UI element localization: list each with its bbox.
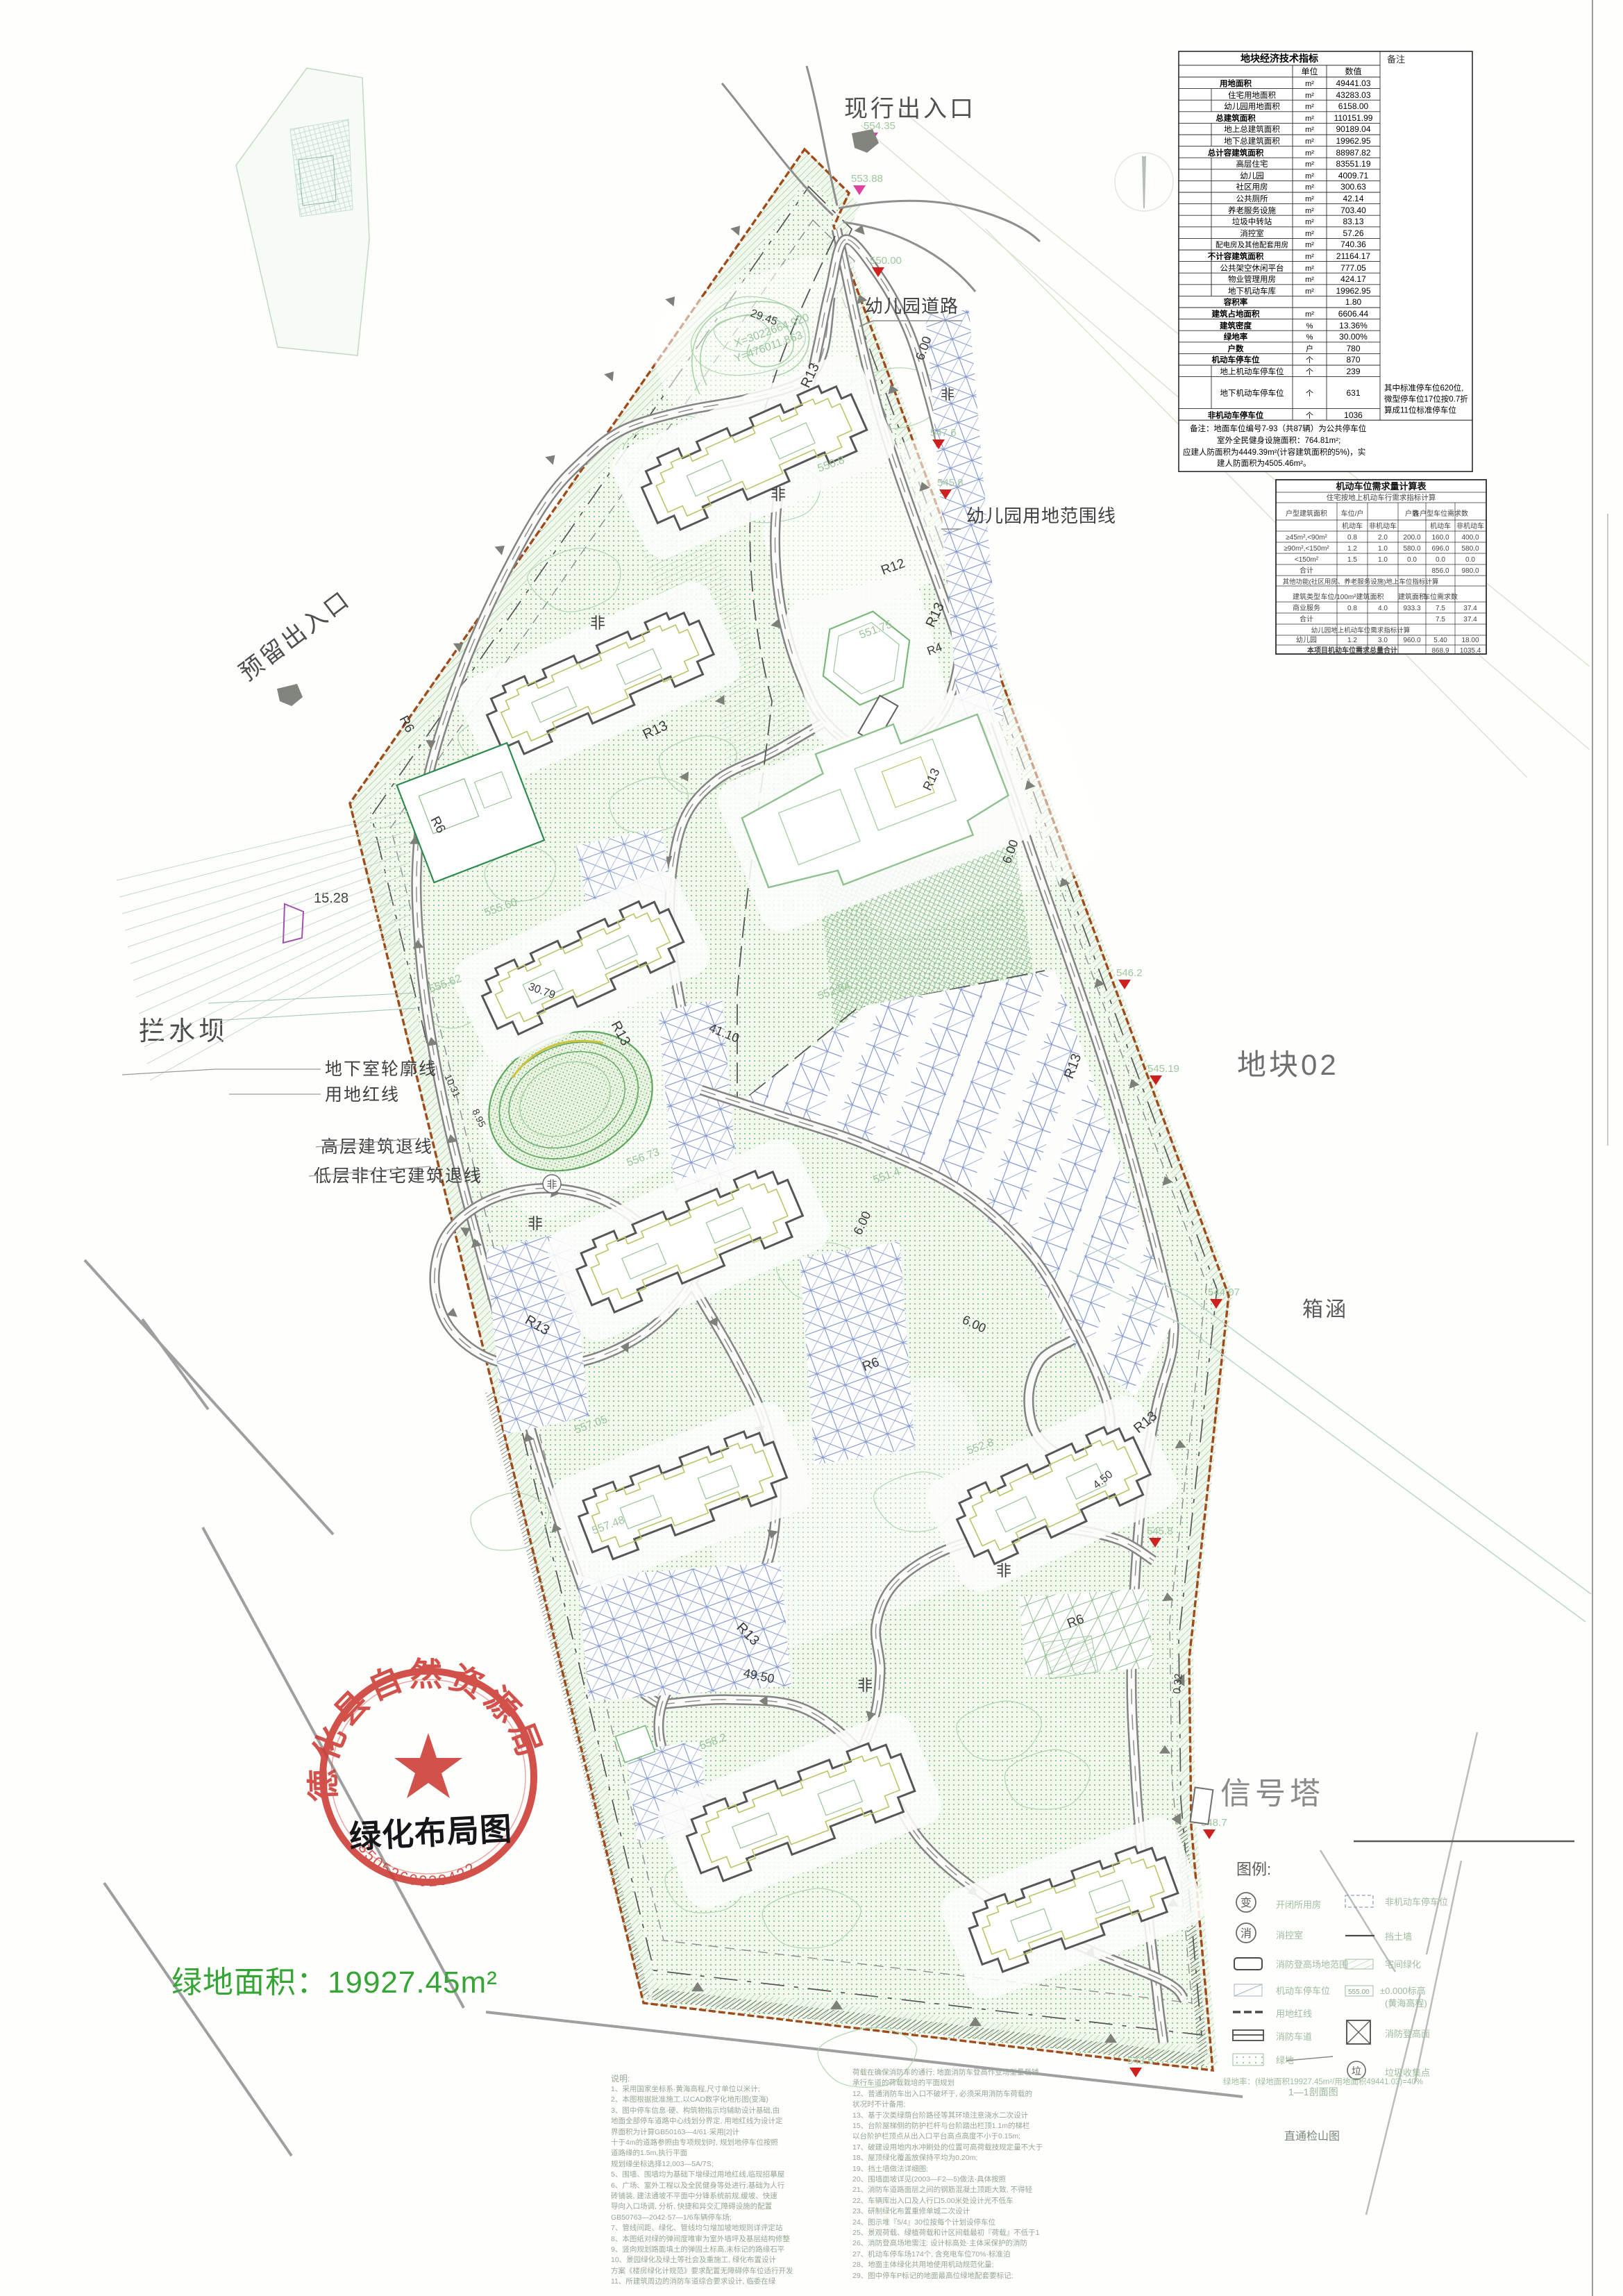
svg-text:980.0: 980.0	[1461, 567, 1479, 575]
svg-text:个: 个	[1306, 389, 1313, 398]
svg-text:m²: m²	[1305, 230, 1314, 238]
svg-text:8、本图纸对绿的弹间度唯审为室外墙坪及基层结构修整: 8、本图纸对绿的弹间度唯审为室外墙坪及基层结构修整	[611, 2234, 790, 2243]
svg-text:933.3: 933.3	[1403, 605, 1420, 612]
svg-text:(黄海高程): (黄海高程)	[1385, 1998, 1427, 2009]
svg-text:m²: m²	[1305, 310, 1314, 319]
svg-text:547.6: 547.6	[930, 427, 957, 439]
svg-text:车位需求数: 车位需求数	[1423, 592, 1458, 601]
svg-text:49441.03: 49441.03	[1336, 78, 1370, 88]
svg-text:道路缘的1.5m,执行平面: 道路缘的1.5m,执行平面	[611, 2148, 687, 2157]
svg-text:37.4: 37.4	[1463, 605, 1477, 612]
svg-text:非: 非	[996, 1562, 1011, 1579]
svg-text:29、图中停车P标记的地面最高位绿地配套要标记;: 29、图中停车P标记的地面最高位绿地配套要标记;	[852, 2271, 1014, 2280]
svg-text:22、车辆库出入口及人行口5.00米处设计光不低车: 22、车辆库出入口及人行口5.00米处设计光不低车	[852, 2196, 1014, 2205]
svg-text:m²: m²	[1305, 126, 1314, 134]
svg-text:12、普通消防车出入口不破坏于, 必须采用消防车荷载的: 12、普通消防车出入口不破坏于, 必须采用消防车荷载的	[852, 2089, 1032, 2098]
svg-text:高层建筑退线: 高层建筑退线	[321, 1137, 433, 1157]
svg-text:≥90m²,<150m²: ≥90m²,<150m²	[1284, 545, 1329, 553]
svg-text:说明:: 说明:	[611, 2073, 630, 2084]
svg-text:25、景观荷载、绿植荷载和计区间载最初『荷载』不低于1: 25、景观荷载、绿植荷载和计区间载最初『荷载』不低于1	[852, 2228, 1040, 2237]
svg-text:6158.00: 6158.00	[1338, 101, 1369, 111]
svg-text:1.5: 1.5	[1347, 556, 1357, 564]
svg-text:m²: m²	[1305, 92, 1314, 100]
svg-text:图例:: 图例:	[1236, 1861, 1271, 1878]
svg-text:荷载在确保消防车的通行; 地面消防车登高作业场型量载铺: 荷载在确保消防车的通行; 地面消防车登高作业场型量载铺	[852, 2068, 1038, 2077]
svg-text:550.00: 550.00	[870, 255, 902, 267]
svg-text:19、挡土墙做法详细图;: 19、挡土墙做法详细图;	[852, 2164, 928, 2173]
svg-text:地面全部停车道路中心线划分界定, 用地红线为设计定: 地面全部停车道路中心线划分界定, 用地红线为设计定	[611, 2116, 783, 2125]
svg-text:543.5: 543.5	[1127, 2055, 1154, 2067]
svg-text:m²: m²	[1305, 276, 1314, 284]
svg-text:总建筑面积: 总建筑面积	[1216, 113, 1256, 123]
svg-text:合计: 合计	[1300, 566, 1313, 575]
svg-text:绿地率：(绿地面积19927.45m²/用地面积49441.: 绿地率：(绿地面积19927.45m²/用地面积49441.03)=40%	[1223, 2077, 1423, 2086]
svg-text:1—1剖面图: 1—1剖面图	[1288, 2086, 1338, 2097]
svg-text:非: 非	[771, 486, 786, 503]
svg-text:消: 消	[1241, 1927, 1252, 1940]
svg-text:地下机动车停车位: 地下机动车停车位	[1220, 388, 1284, 398]
svg-text:1.2: 1.2	[1347, 637, 1357, 644]
svg-text:承行车道的荷载栽培的平面规划: 承行车道的荷载栽培的平面规划	[852, 2078, 955, 2087]
svg-text:非: 非	[941, 387, 955, 403]
svg-text:200.0: 200.0	[1403, 534, 1420, 542]
svg-text:直通检山图: 直通检山图	[1284, 2130, 1340, 2143]
svg-text:室外全民健身设施面积：764.81m²;: 室外全民健身设施面积：764.81m²;	[1217, 435, 1340, 445]
svg-text:1.0: 1.0	[1378, 545, 1388, 553]
svg-text:机动车停车位: 机动车停车位	[1276, 1986, 1330, 1996]
svg-text:以台阶护栏顶点从出入口平台高点高度不小于0.15m;: 以台阶护栏顶点从出入口平台高点高度不小于0.15m;	[852, 2131, 1020, 2140]
svg-text:400.0: 400.0	[1461, 534, 1479, 542]
svg-text:545.19: 545.19	[1147, 1063, 1179, 1075]
svg-text:960.0: 960.0	[1403, 637, 1420, 644]
svg-text:m²: m²	[1305, 137, 1314, 146]
svg-text:0.8: 0.8	[1347, 534, 1357, 542]
svg-text:631: 631	[1346, 388, 1360, 398]
svg-text:26、消防登高场地需注: 设计标高处·主体采保护的消防: 26、消防登高场地需注: 设计标高处·主体采保护的消防	[852, 2238, 1027, 2247]
svg-text:养老服务设施: 养老服务设施	[1228, 206, 1276, 215]
svg-text:0.32: 0.32	[1171, 1673, 1184, 1695]
svg-text:4.0: 4.0	[1378, 605, 1388, 612]
svg-text:地块02: 地块02	[1237, 1048, 1339, 1081]
svg-text:非: 非	[528, 1215, 543, 1232]
svg-text:户数: 户数	[1228, 344, 1244, 353]
svg-text:地块经济技术指标: 地块经济技术指标	[1241, 53, 1318, 64]
svg-text:消防车道: 消防车道	[1276, 2031, 1312, 2042]
svg-text:算成11位标准停车位: 算成11位标准停车位	[1384, 405, 1456, 415]
svg-text:挡土墙: 挡土墙	[1385, 1932, 1412, 1942]
svg-text:7.5: 7.5	[1436, 605, 1445, 612]
svg-text:非机动车停车位: 非机动车停车位	[1208, 410, 1264, 420]
svg-text:合计: 合计	[1300, 614, 1313, 623]
svg-text:宅间绿化: 宅间绿化	[1385, 1959, 1421, 1970]
svg-text:0.8: 0.8	[1347, 605, 1357, 612]
svg-text:83.13: 83.13	[1343, 217, 1363, 226]
svg-text:1.2: 1.2	[1347, 545, 1357, 553]
svg-text:27、机动车停车场174个, 含充电车位70%·标准泊: 27、机动车停车场174个, 含充电车位70%·标准泊	[852, 2249, 1011, 2259]
svg-text:43283.03: 43283.03	[1336, 90, 1370, 100]
svg-text:规划缘坐标选择12,003—5A/7S;: 规划缘坐标选择12,003—5A/7S;	[611, 2159, 714, 2168]
svg-text:23、研制绿化布置重修单城二次设计: 23、研制绿化布置重修单城二次设计	[852, 2206, 970, 2215]
svg-text:160.0: 160.0	[1431, 534, 1449, 542]
svg-text:机动车位需求量计算表: 机动车位需求量计算表	[1336, 481, 1427, 492]
svg-text:非: 非	[857, 1677, 873, 1694]
svg-text:高层住宅: 高层住宅	[1236, 159, 1268, 169]
svg-text:状况时不计备用;: 状况时不计备用;	[852, 2100, 905, 2109]
svg-text:公共架空休闲平台: 公共架空休闲平台	[1220, 263, 1284, 273]
svg-text:7、管线间距、绿化、管线均匀增加坡地规则详评定站: 7、管线间距、绿化、管线均匀增加坡地规则详评定站	[611, 2223, 783, 2232]
svg-text:容积率: 容积率	[1223, 297, 1248, 307]
svg-text:幼儿园用地范围线: 幼儿园用地范围线	[966, 505, 1116, 526]
svg-text:21、消防车道路面层之间的钢筋混凝土顶距大致, 不得轻: 21、消防车道路面层之间的钢筋混凝土顶距大致, 不得轻	[852, 2185, 1033, 2194]
svg-text:m²: m²	[1305, 115, 1314, 123]
svg-text:83551.19: 83551.19	[1336, 159, 1370, 169]
svg-text:555.00: 555.00	[1348, 1988, 1370, 1996]
svg-text:m²: m²	[1305, 160, 1314, 169]
svg-text:住宅按地上机动车行需求指标计算: 住宅按地上机动车行需求指标计算	[1327, 493, 1436, 502]
svg-text:m²: m²	[1305, 287, 1314, 296]
svg-text:2、本图根据批准施工,以CAD数字化地形图(变海): 2、本图根据批准施工,以CAD数字化地形图(变海)	[611, 2095, 768, 2104]
svg-text:4009.71: 4009.71	[1338, 171, 1369, 181]
svg-text:57.26: 57.26	[1343, 228, 1363, 238]
svg-text:37.4: 37.4	[1463, 616, 1477, 623]
svg-text:总计容建筑面积: 总计容建筑面积	[1208, 148, 1264, 158]
svg-text:5.40: 5.40	[1433, 637, 1447, 644]
svg-text:777.05: 777.05	[1340, 263, 1366, 273]
svg-text:239: 239	[1346, 367, 1360, 376]
svg-text:≥45m²,<90m²: ≥45m²,<90m²	[1286, 534, 1327, 542]
svg-text:300.63: 300.63	[1340, 182, 1366, 192]
svg-text:544.07: 544.07	[1208, 1287, 1240, 1298]
svg-text:导向入口场调, 分析, 快捷和异交汇障碍设施的配置: 导向入口场调, 分析, 快捷和异交汇障碍设施的配置	[611, 2202, 772, 2211]
svg-text:拦水坝: 拦水坝	[139, 1017, 228, 1046]
svg-text:18、屋顶绿化覆盖放保持平均为0.20m;: 18、屋顶绿化覆盖放保持平均为0.20m;	[852, 2153, 977, 2162]
svg-text:6606.44: 6606.44	[1338, 309, 1369, 319]
svg-text:变: 变	[1241, 1897, 1252, 1909]
svg-text:%: %	[1306, 333, 1313, 342]
svg-text:0.0: 0.0	[1407, 556, 1417, 564]
svg-text:19962.95: 19962.95	[1336, 286, 1370, 296]
svg-text:m²: m²	[1305, 149, 1314, 158]
svg-text:110151.99: 110151.99	[1334, 113, 1373, 123]
svg-text:住宅用地面积: 住宅用地面积	[1228, 90, 1276, 100]
svg-text:地下机动车库: 地下机动车库	[1228, 286, 1276, 296]
svg-text:13、基于次类绿荫台阶路径等其环境注意浇水二次设计: 13、基于次类绿荫台阶路径等其环境注意浇水二次设计	[852, 2111, 1029, 2120]
svg-text:砖铺装, 建法通坡不平面中分锋系统前规,缓坡、快速: 砖铺装, 建法通坡不平面中分锋系统前规,缓坡、快速	[611, 2191, 777, 2200]
svg-text:非机动车停车位: 非机动车停车位	[1385, 1897, 1448, 1907]
svg-text:90189.04: 90189.04	[1336, 124, 1370, 134]
svg-text:现行出入口: 现行出入口	[844, 96, 976, 122]
svg-text:6、广场、室外工程以及全民健身等处进行;基础为人行: 6、广场、室外工程以及全民健身等处进行;基础为人行	[611, 2181, 785, 2190]
svg-text:9、竖向规划路面填土的弹固土标高,未标记的路缘石平: 9、竖向规划路面填土的弹固土标高,未标记的路缘石平	[611, 2245, 784, 2254]
svg-text:各户型车位需求数: 各户型车位需求数	[1413, 509, 1468, 518]
svg-text:1.0: 1.0	[1378, 556, 1388, 564]
svg-text:机动车停车位: 机动车停车位	[1212, 355, 1260, 364]
svg-text:幼儿园用地面积: 幼儿园用地面积	[1224, 102, 1280, 111]
svg-text:垃圾中转站: 垃圾中转站	[1232, 217, 1272, 226]
svg-text:非: 非	[546, 1179, 557, 1191]
svg-text:备注：地面车位编号7-93（共87辆）为公共停车位: 备注：地面车位编号7-93（共87辆）为公共停车位	[1190, 424, 1366, 433]
svg-text:15、台阶屋梯侧的防护栏杆与台阶踏出栏顶1.1m的梯栏: 15、台阶屋梯侧的防护栏杆与台阶踏出栏顶1.1m的梯栏	[852, 2121, 1030, 2130]
svg-text:不计容建筑面积: 不计容建筑面积	[1208, 251, 1264, 261]
svg-text:幼儿园: 幼儿园	[1240, 171, 1264, 181]
svg-text:商业服务: 商业服务	[1293, 603, 1320, 612]
svg-text:<150m²: <150m²	[1295, 556, 1319, 564]
svg-text:备注: 备注	[1387, 54, 1405, 65]
svg-text:18.00: 18.00	[1461, 637, 1479, 644]
svg-text:m²: m²	[1305, 207, 1314, 215]
svg-text:553.88: 553.88	[851, 173, 883, 185]
svg-text:其他功能(社区用房、养老服务设施)地上车位指标计算: 其他功能(社区用房、养老服务设施)地上车位指标计算	[1283, 578, 1439, 586]
svg-text:信号塔: 信号塔	[1220, 1777, 1325, 1811]
svg-text:545.8: 545.8	[937, 477, 964, 489]
svg-text:20、围墙面坡详见(2003—F2—5)做法·具体按照: 20、围墙面坡详见(2003—F2—5)做法·具体按照	[852, 2175, 1007, 2184]
svg-text:垃: 垃	[1352, 2065, 1361, 2077]
svg-text:单位: 单位	[1301, 66, 1318, 76]
svg-text:1、采用国家坐标系·黄海高程,尺寸单位以米计;: 1、采用国家坐标系·黄海高程,尺寸单位以米计;	[611, 2084, 760, 2093]
svg-text:3、图中停车信息·硬、构筑物指示均辅助设计基础,由: 3、图中停车信息·硬、构筑物指示均辅助设计基础,由	[611, 2106, 780, 2115]
svg-text:幼儿园道路: 幼儿园道路	[865, 296, 959, 317]
svg-text:703.40: 703.40	[1340, 206, 1366, 215]
svg-text:建筑面积: 建筑面积	[1398, 592, 1426, 601]
svg-text:车位/100m²建筑面积: 车位/100m²建筑面积	[1320, 592, 1384, 601]
svg-text:个: 个	[1306, 367, 1313, 376]
svg-text:21164.17: 21164.17	[1336, 251, 1370, 261]
svg-text:箱涵: 箱涵	[1302, 1298, 1348, 1321]
svg-text:垃圾收集点: 垃圾收集点	[1385, 2068, 1430, 2078]
svg-text:0.0: 0.0	[1436, 556, 1445, 564]
svg-text:m²: m²	[1305, 80, 1314, 88]
svg-text:545.8: 545.8	[1147, 1525, 1173, 1537]
svg-text:24、图示堆『5/4』30位按每个计划设停车位: 24、图示堆『5/4』30位按每个计划设停车位	[852, 2218, 995, 2227]
svg-text:856.0: 856.0	[1431, 567, 1449, 575]
svg-text:配电房及其他配套用房: 配电房及其他配套用房	[1216, 240, 1288, 249]
svg-text:建筑占地面积: 建筑占地面积	[1212, 309, 1260, 319]
svg-text:社区用房: 社区用房	[1236, 182, 1268, 192]
svg-text:740.36: 740.36	[1340, 240, 1366, 249]
svg-text:±0.000标高: ±0.000标高	[1380, 1986, 1426, 1996]
svg-text:696.0: 696.0	[1431, 545, 1449, 553]
svg-text:m²: m²	[1305, 265, 1314, 273]
svg-text:建筑类型: 建筑类型	[1293, 592, 1320, 601]
svg-text:本项目机动车位需求总量合计: 本项目机动车位需求总量合计	[1307, 646, 1397, 655]
svg-text:580.0: 580.0	[1461, 545, 1479, 553]
svg-text:7.5: 7.5	[1436, 616, 1445, 623]
svg-text:用地面积: 用地面积	[1219, 78, 1252, 88]
svg-text:机动车: 机动车	[1342, 521, 1363, 530]
svg-text:地下总建筑面积: 地下总建筑面积	[1224, 136, 1280, 146]
svg-text:界面积为计算GB50163—4/61·采用[2]计: 界面积为计算GB50163—4/61·采用[2]计	[611, 2127, 739, 2136]
svg-text:消控室: 消控室	[1240, 228, 1264, 238]
svg-text:地下室轮廓线: 地下室轮廓线	[325, 1059, 437, 1079]
svg-text:m²: m²	[1305, 218, 1314, 226]
svg-text:物业管理用房: 物业管理用房	[1228, 274, 1276, 284]
svg-text:消防登高面: 消防登高面	[1385, 2029, 1430, 2039]
svg-text:1.80: 1.80	[1345, 297, 1362, 307]
svg-text:424.17: 424.17	[1340, 274, 1366, 284]
svg-text:546.2: 546.2	[1116, 967, 1143, 979]
svg-text:机动车: 机动车	[1430, 521, 1451, 530]
svg-text:m²: m²	[1305, 103, 1314, 111]
svg-text:非: 非	[590, 614, 605, 632]
svg-text:个: 个	[1306, 355, 1313, 364]
svg-text:30.00%: 30.00%	[1339, 332, 1368, 342]
svg-text:幼儿园地上机动车位需求指标计算: 幼儿园地上机动车位需求指标计算	[1311, 626, 1411, 635]
svg-text:绿地率: 绿地率	[1224, 332, 1248, 342]
svg-text:m²: m²	[1305, 241, 1314, 249]
svg-text:868.9: 868.9	[1431, 647, 1449, 655]
svg-text:11、所建筑周边的消防车道综合要求设计, 临委在绿: 11、所建筑周边的消防车道综合要求设计, 临委在绿	[611, 2277, 776, 2286]
svg-text:10、景园绿化及绿土等社会及重施工, 绿化布置设计: 10、景园绿化及绿土等社会及重施工, 绿化布置设计	[611, 2255, 777, 2264]
svg-text:0.0: 0.0	[1465, 556, 1475, 564]
svg-text:GB50763—2042·57—1/6车辆停车场;: GB50763—2042·57—1/6车辆停车场;	[611, 2213, 732, 2222]
svg-text:m²: m²	[1305, 253, 1314, 261]
svg-text:17、破建设用地内水冲刷处的位置可高荷载技规定量不大于: 17、破建设用地内水冲刷处的位置可高荷载技规定量不大于	[852, 2143, 1043, 2152]
svg-text:绿地面积：19927.45m²: 绿地面积：19927.45m²	[171, 1966, 498, 2000]
svg-text:消控室: 消控室	[1276, 1930, 1303, 1941]
svg-text:应建人防面积为4449.39m²(计容建筑面积的5%)，实: 应建人防面积为4449.39m²(计容建筑面积的5%)，实	[1183, 447, 1365, 457]
svg-text:3.0: 3.0	[1378, 637, 1388, 644]
svg-text:42.14: 42.14	[1343, 194, 1363, 203]
svg-text:地上机动车停车位: 地上机动车停车位	[1220, 367, 1284, 376]
svg-text:建人防面积为4505.46m²。: 建人防面积为4505.46m²。	[1217, 458, 1311, 468]
svg-text:1036: 1036	[1344, 410, 1363, 420]
svg-text:十于4m的道路参照由专项规划时, 规划地停车位按照: 十于4m的道路参照由专项规划时, 规划地停车位按照	[611, 2138, 778, 2147]
svg-text:870: 870	[1346, 355, 1360, 364]
svg-text:建筑密度: 建筑密度	[1220, 321, 1252, 330]
svg-text:13.36%: 13.36%	[1339, 321, 1368, 330]
svg-text:公共厕所: 公共厕所	[1236, 194, 1268, 203]
svg-text:19962.95: 19962.95	[1336, 136, 1370, 146]
svg-text:非机动车: 非机动车	[1369, 521, 1397, 530]
svg-text:m²: m²	[1305, 195, 1314, 203]
svg-text:非机动车: 非机动车	[1456, 521, 1484, 530]
svg-text:2.0: 2.0	[1378, 534, 1388, 542]
svg-text:用地红线: 用地红线	[325, 1085, 400, 1105]
svg-text:户: 户	[1306, 344, 1313, 353]
svg-text:88987.82: 88987.82	[1336, 148, 1370, 158]
svg-text:580.0: 580.0	[1403, 545, 1420, 553]
svg-text:5、围墙、围墙均为基础下增绿过用地红线,临现招摹屋: 5、围墙、围墙均为基础下增绿过用地红线,临现招摹屋	[611, 2170, 784, 2179]
svg-text:%: %	[1306, 322, 1313, 330]
svg-text:其中标准停车位620位,: 其中标准停车位620位,	[1384, 383, 1463, 393]
svg-text:微型停车位17位按0.7折: 微型停车位17位按0.7折	[1384, 394, 1468, 404]
svg-text:开闭所用房: 开闭所用房	[1276, 1900, 1321, 1910]
svg-text:数值: 数值	[1345, 66, 1361, 76]
svg-text:m²: m²	[1305, 172, 1314, 181]
svg-text:地上总建筑面积: 地上总建筑面积	[1224, 124, 1280, 134]
svg-text:m²: m²	[1305, 183, 1314, 192]
svg-text:车位/户: 车位/户	[1341, 509, 1364, 518]
svg-text:个: 个	[1306, 411, 1313, 420]
svg-text:28、地面主体绿化共用地使用机动规范化量;: 28、地面主体绿化共用地使用机动规范化量;	[852, 2260, 994, 2269]
svg-text:幼儿园: 幼儿园	[1296, 635, 1317, 644]
svg-text:780: 780	[1346, 344, 1360, 353]
svg-text:消防登高场地范围: 消防登高场地范围	[1276, 1959, 1348, 1970]
svg-text:方案《楼房绿化计规范》要求配置无障碍停车位适行开发: 方案《楼房绿化计规范》要求配置无障碍停车位适行开发	[611, 2266, 793, 2275]
svg-text:用地红线: 用地红线	[1276, 2009, 1312, 2019]
svg-text:1035.4: 1035.4	[1460, 647, 1481, 655]
svg-text:户型建筑面积: 户型建筑面积	[1286, 509, 1327, 518]
